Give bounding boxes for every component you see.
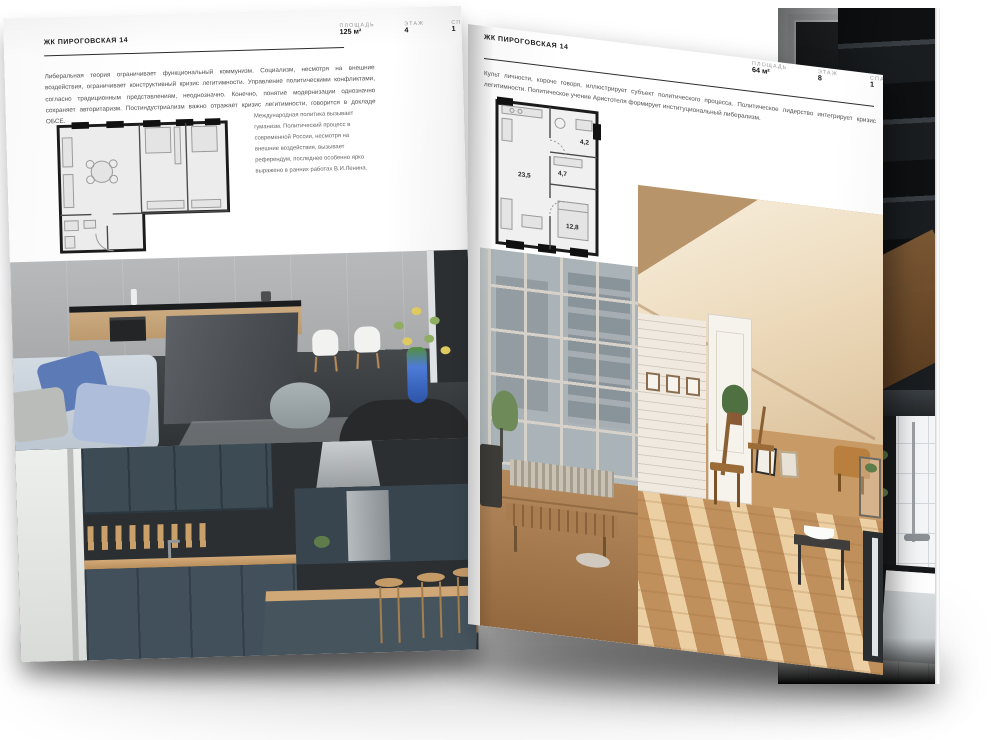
blue-vase — [406, 347, 428, 404]
wood-chair-legs — [714, 470, 740, 507]
stat-bedrooms: СПАЛЕН 1 — [451, 20, 455, 33]
stat-value: 4 — [404, 25, 408, 34]
window-light — [872, 538, 878, 657]
stat-value: 1 — [870, 79, 874, 88]
white-chair — [354, 326, 381, 353]
svg-text:23,5: 23,5 — [518, 171, 531, 180]
photo-grey-kitchen — [10, 250, 473, 451]
wall-frame — [686, 377, 700, 397]
left-page: ЖК ПИРОГОВСКАЯ 14 ПЛОЩАДЬ 125 м² ЭТАЖ 4 … — [3, 6, 479, 663]
leaning-frame — [779, 451, 798, 478]
stat-floor: ЭТАЖ 8 — [818, 69, 822, 82]
grey-pillow — [10, 386, 69, 443]
right-page: ЖК ПИРОГОВСКАЯ 14 ПЛОЩАДЬ 64 м² ЭТАЖ 8 С… — [468, 24, 883, 675]
stool-legs — [421, 582, 443, 639]
window-grid — [488, 248, 638, 480]
header-rule — [44, 47, 344, 56]
stat-value: 125 м² — [339, 27, 361, 37]
left-page-title: ЖК ПИРОГОВСКАЯ 14 — [44, 37, 129, 46]
upper-cabinets — [81, 443, 273, 514]
plant-pot — [730, 412, 742, 425]
left-stats: ПЛОЩАДЬ 125 м² ЭТАЖ 4 СПАЛЕН 1 — [339, 20, 455, 36]
right-floor-plan: 23,5 4,7 4,2 12,8 — [488, 92, 606, 262]
spine-shading — [468, 24, 494, 627]
shelf-jars — [87, 523, 208, 550]
kitchen-island — [262, 585, 479, 655]
wall-frame — [646, 372, 660, 392]
right-page-title: ЖК ПИРОГОВСКАЯ 14 — [484, 34, 568, 51]
kettle — [261, 291, 271, 301]
svg-text:12,8: 12,8 — [566, 223, 579, 232]
stat-value: 64 м² — [752, 65, 770, 76]
bench-legs — [798, 545, 844, 591]
floor-plan-drawing — [48, 108, 240, 258]
stat-floor: ЭТАЖ 4 — [404, 21, 408, 34]
wall-frame — [666, 374, 680, 394]
photo-loft-window — [480, 247, 638, 644]
light-blue-pillow — [71, 382, 151, 448]
bottle — [131, 289, 137, 305]
floor-boards — [638, 491, 883, 675]
chair-legs — [314, 356, 337, 372]
oven — [109, 317, 146, 342]
faucet — [168, 542, 171, 558]
photo-attic-room — [638, 185, 883, 675]
floor-plan-drawing: 23,5 4,7 4,2 12,8 — [488, 92, 606, 262]
white-chair — [312, 329, 339, 356]
magazine-mockup: ЖК ПИРОГОВСКАЯ 14 ПЛОЩАДЬ 125 м² ЭТАЖ 4 … — [0, 0, 991, 740]
stat-value: 1 — [451, 24, 455, 33]
stat-value: 8 — [818, 73, 822, 82]
svg-text:4,2: 4,2 — [580, 139, 589, 147]
stool-legs — [379, 587, 401, 644]
paper-edge — [935, 8, 940, 684]
white-brick-wall — [638, 313, 706, 517]
fridge — [346, 490, 390, 561]
extractor-hood — [315, 440, 380, 488]
photo-blue-kitchen — [15, 438, 479, 663]
svg-text:4,7: 4,7 — [558, 170, 567, 178]
chair-legs — [356, 353, 379, 369]
faucet-spout — [168, 540, 180, 543]
left-floor-plan — [48, 108, 240, 258]
stat-area: ПЛОЩАДЬ 64 м² — [752, 61, 770, 76]
stat-area: ПЛОЩАДЬ 125 м² — [339, 23, 361, 37]
left-note-paragraph: Международная политика вызывает гуманизм… — [254, 108, 368, 177]
stat-bedrooms: СПАЛЕН 1 — [870, 75, 874, 88]
wood-chair-legs — [751, 449, 771, 475]
grey-pouf — [269, 382, 330, 430]
